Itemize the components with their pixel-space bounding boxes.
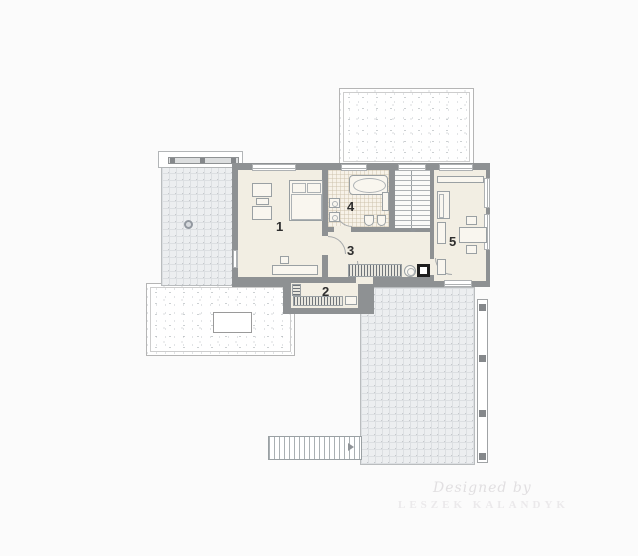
window-room1-top bbox=[252, 164, 296, 171]
pergola bbox=[158, 151, 243, 168]
sofa-back bbox=[439, 194, 444, 218]
cabinet bbox=[437, 222, 446, 244]
room-number-2: 2 bbox=[322, 284, 329, 299]
railing-post bbox=[479, 355, 486, 362]
flat-roof-lower bbox=[146, 283, 295, 356]
staircase bbox=[395, 170, 430, 228]
door-opening-room5 bbox=[430, 259, 434, 275]
hanger-rack-side bbox=[292, 284, 301, 296]
pillow bbox=[292, 183, 306, 193]
sink bbox=[329, 198, 340, 208]
watermark-designer-name: LESZEK KALANDYK bbox=[398, 499, 569, 511]
desk-chair bbox=[466, 216, 477, 225]
sink-basin bbox=[332, 201, 338, 207]
sink-basin bbox=[332, 215, 338, 221]
door-opening-room2 bbox=[356, 277, 373, 284]
door-opening-bath bbox=[334, 226, 351, 233]
sink bbox=[329, 212, 340, 222]
toilet bbox=[364, 215, 374, 226]
shelf bbox=[437, 176, 484, 183]
pergola-post bbox=[170, 158, 175, 163]
washer-drum bbox=[407, 268, 415, 276]
room-number-3: 3 bbox=[347, 243, 354, 258]
railing-post bbox=[479, 304, 486, 311]
shelf-small bbox=[345, 296, 357, 305]
armchair bbox=[252, 183, 272, 197]
wardrobe-rack bbox=[348, 264, 402, 277]
mattress bbox=[291, 194, 322, 220]
desk-chair bbox=[466, 245, 477, 254]
dresser bbox=[272, 265, 318, 275]
pillow bbox=[307, 183, 321, 193]
room-number-4: 4 bbox=[347, 199, 354, 214]
appliance-dark bbox=[417, 264, 430, 277]
window-room1-west bbox=[233, 250, 238, 268]
tub-basin bbox=[353, 178, 386, 193]
watermark-designed-by: Designed by bbox=[433, 480, 532, 496]
side-table bbox=[256, 198, 269, 205]
skylight bbox=[213, 312, 252, 333]
cabinet bbox=[437, 259, 446, 275]
pergola-post bbox=[200, 158, 205, 163]
bidet bbox=[377, 215, 386, 226]
window-room5-bottom bbox=[444, 280, 472, 287]
stairs-direction-arrow bbox=[348, 443, 354, 451]
window-stairs-top bbox=[398, 164, 426, 171]
railing-post bbox=[479, 453, 486, 460]
terrace-south bbox=[360, 287, 475, 465]
bed bbox=[289, 180, 323, 221]
terrace-west bbox=[161, 165, 240, 286]
flat-roof-upper bbox=[339, 88, 474, 166]
window-room5-east-a bbox=[484, 178, 490, 208]
roof-frame bbox=[343, 92, 470, 162]
washing-machine bbox=[404, 265, 416, 277]
railing-east bbox=[477, 299, 488, 463]
desk bbox=[459, 227, 487, 243]
railing-post bbox=[479, 410, 486, 417]
sofa bbox=[437, 191, 450, 219]
window-bath-top bbox=[341, 164, 367, 171]
armchair bbox=[252, 206, 272, 220]
room-number-1: 1 bbox=[276, 219, 283, 234]
hanger-rack bbox=[293, 296, 343, 306]
bath-cabinet bbox=[382, 192, 389, 211]
window-room5-top bbox=[439, 164, 473, 171]
room-number-5: 5 bbox=[449, 234, 456, 249]
pergola-beam bbox=[168, 157, 239, 164]
floor-plan-canvas: 1 2 3 4 5 Designed by LESZEK KALANDYK bbox=[0, 0, 638, 556]
appliance-door bbox=[420, 267, 427, 274]
terrace-drain bbox=[184, 220, 193, 229]
small-table bbox=[280, 256, 289, 264]
